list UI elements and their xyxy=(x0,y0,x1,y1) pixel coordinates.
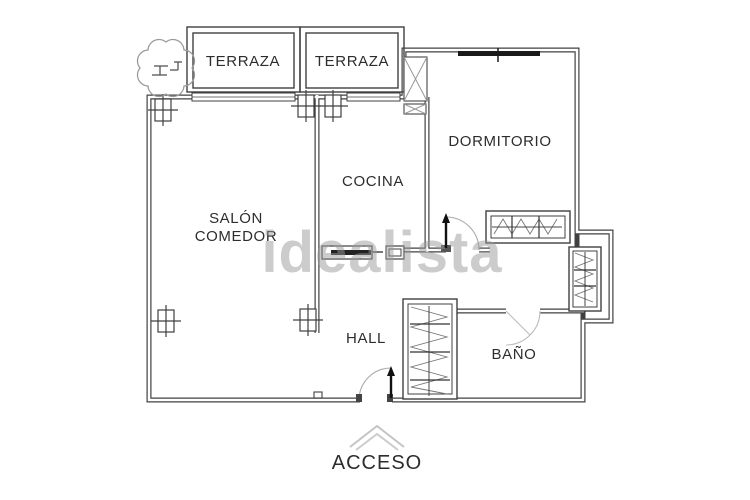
corridor-wardrobe-icon xyxy=(569,247,601,311)
access-marker: ACCESO xyxy=(332,426,422,474)
room-label-dormitorio: DORMITORIO xyxy=(448,133,551,150)
room-label-bano: BAÑO xyxy=(492,346,537,363)
crosshatch-column-marker-icon xyxy=(151,305,181,337)
tree-icon xyxy=(137,39,194,96)
room-label-terraza-right: TERRAZA xyxy=(315,53,389,70)
room-label-salon-line1: SALÓN xyxy=(209,210,263,227)
access-label: ACCESO xyxy=(332,452,422,474)
cocina-window-icon xyxy=(347,93,400,101)
hall-wardrobe-icon xyxy=(403,299,457,399)
room-label-terraza-left: TERRAZA xyxy=(206,53,280,70)
salon-window-icon xyxy=(192,93,295,101)
floor-plan-page: TERRAZA TERRAZA DORMITORIO COCINA SALÓN … xyxy=(0,0,750,500)
entrance-door-swing-arrow-icon xyxy=(356,366,395,402)
bano-door-swing-icon xyxy=(506,311,540,345)
room-label-hall: HALL xyxy=(346,330,386,347)
x-crossed-shaft-icon xyxy=(404,57,427,114)
idealista-watermark: idealista xyxy=(261,220,502,285)
chevron-up-icon xyxy=(350,426,404,447)
floor-plan-svg: TERRAZA TERRAZA DORMITORIO COCINA SALÓN … xyxy=(0,0,750,500)
room-label-cocina: COCINA xyxy=(342,173,404,190)
door-stop-notch xyxy=(314,392,322,398)
